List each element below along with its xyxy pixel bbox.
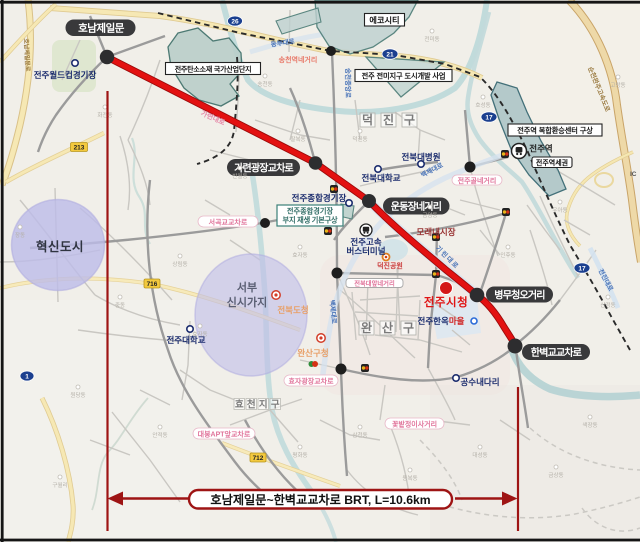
svg-text:전주골네거리: 전주골네거리 [458,176,497,185]
svg-text:팔복동: 팔복동 [290,136,305,143]
svg-text:IC: IC [630,171,637,178]
svg-text:대붕APT앞교차로: 대붕APT앞교차로 [198,430,251,439]
svg-text:완: 완 [361,321,372,335]
svg-text:호남제일문~한벽교교차로 BRT, L=10.6km: 호남제일문~한벽교교차로 BRT, L=10.6km [210,492,430,507]
svg-text:우아동: 우아동 [552,206,567,214]
svg-text:산: 산 [382,320,393,335]
svg-text:서곡교교차로: 서곡교교차로 [209,218,248,227]
svg-text:효자광장교차로: 효자광장교차로 [288,377,334,386]
svg-text:26: 26 [231,19,239,26]
svg-text:고랑동: 고랑동 [610,82,625,89]
svg-text:꽃밭정이사거리: 꽃밭정이사거리 [392,420,437,429]
svg-text:전북대앞네거리: 전북대앞네거리 [354,279,395,288]
svg-text:색장동: 색장동 [582,421,597,429]
svg-text:덕진동: 덕진동 [352,135,367,143]
svg-text:호성동: 호성동 [475,101,490,109]
svg-text:전주종합경기장: 전주종합경기장 [287,207,334,216]
svg-text:1: 1 [25,374,29,381]
svg-text:구: 구 [271,400,280,411]
svg-text:금암동: 금암동 [422,211,437,219]
svg-text:덕: 덕 [362,112,373,127]
svg-text:버스터미널: 버스터미널 [346,246,385,256]
svg-text:모래내시장: 모래내시장 [416,227,455,237]
svg-text:인후동: 인후동 [500,252,515,259]
svg-text:17: 17 [485,115,493,122]
svg-text:병무청오거리: 병무청오거리 [494,289,545,302]
svg-text:천: 천 [247,400,256,411]
svg-text:구: 구 [403,321,414,335]
svg-text:효: 효 [235,400,244,411]
svg-text:송천중앙로: 송천중앙로 [344,68,353,98]
svg-text:구: 구 [404,113,415,127]
svg-text:대성동: 대성동 [472,451,487,459]
svg-text:가련광장교차로: 가련광장교차로 [234,161,293,174]
svg-text:안적동: 안적동 [152,432,167,439]
svg-text:혁신도시: 혁신도시 [36,239,84,254]
svg-text:구월리: 구월리 [52,481,67,489]
svg-text:신시가지: 신시가지 [227,295,267,309]
svg-text:화전동: 화전동 [97,111,112,119]
svg-text:전주한옥마을: 전주한옥마을 [418,316,465,326]
svg-text:전주 전미지구 도시개발 사업: 전주 전미지구 도시개발 사업 [362,72,446,81]
svg-text:반월동: 반월동 [232,172,247,180]
svg-text:17: 17 [578,266,586,273]
svg-text:부지 재생 기본구상: 부지 재생 기본구상 [283,216,338,225]
svg-text:공수내다리: 공수내다리 [460,377,499,387]
svg-text:운동장네거리: 운동장네거리 [391,200,442,213]
svg-text:에코시티: 에코시티 [369,15,399,25]
svg-text:효자동: 효자동 [292,251,307,259]
svg-text:효자동: 효자동 [192,330,207,338]
svg-text:평화동: 평화동 [292,452,307,459]
svg-text:지: 지 [259,399,268,411]
svg-text:전주시청: 전주시청 [424,295,468,309]
svg-text:전미동: 전미동 [424,35,439,43]
svg-text:산정동: 산정동 [600,301,615,309]
svg-text:완산구청: 완산구청 [297,348,328,358]
svg-text:서부: 서부 [237,280,257,294]
svg-text:상림동: 상림동 [172,260,187,268]
svg-text:장동: 장동 [15,232,25,239]
svg-text:전주역: 전주역 [529,144,552,154]
svg-text:전주탄소소재 국가산업단지: 전주탄소소재 국가산업단지 [175,64,252,73]
svg-text:전주역 복합환승센터 구상: 전주역 복합환승센터 구상 [517,126,593,135]
svg-text:진: 진 [383,112,394,127]
svg-text:716: 716 [147,281,158,288]
svg-text:덕진공원: 덕진공원 [377,261,403,270]
svg-text:전주종합경기장: 전주종합경기장 [292,193,347,203]
svg-text:금상동: 금상동 [548,471,563,479]
svg-text:용복동: 용복동 [402,475,417,482]
svg-text:21: 21 [386,52,394,59]
svg-text:전주월드컵경기장: 전주월드컵경기장 [34,70,97,80]
svg-text:213: 213 [74,145,85,152]
svg-text:전북대학교: 전북대학교 [361,173,400,183]
svg-text:전주역세권: 전주역세권 [536,158,568,167]
svg-text:송천역네거리: 송천역네거리 [279,55,318,64]
svg-text:중동: 중동 [115,302,125,309]
svg-text:712: 712 [253,455,264,462]
svg-text:호남제일문: 호남제일문 [78,22,125,35]
svg-text:원당동: 원당동 [70,391,85,399]
svg-text:송천동: 송천동 [257,80,272,88]
svg-text:전북대병원: 전북대병원 [401,152,440,162]
svg-text:삼천동: 삼천동 [352,431,367,439]
svg-text:한벽교교차로: 한벽교교차로 [531,346,582,359]
svg-text:전북도청: 전북도청 [277,305,308,315]
